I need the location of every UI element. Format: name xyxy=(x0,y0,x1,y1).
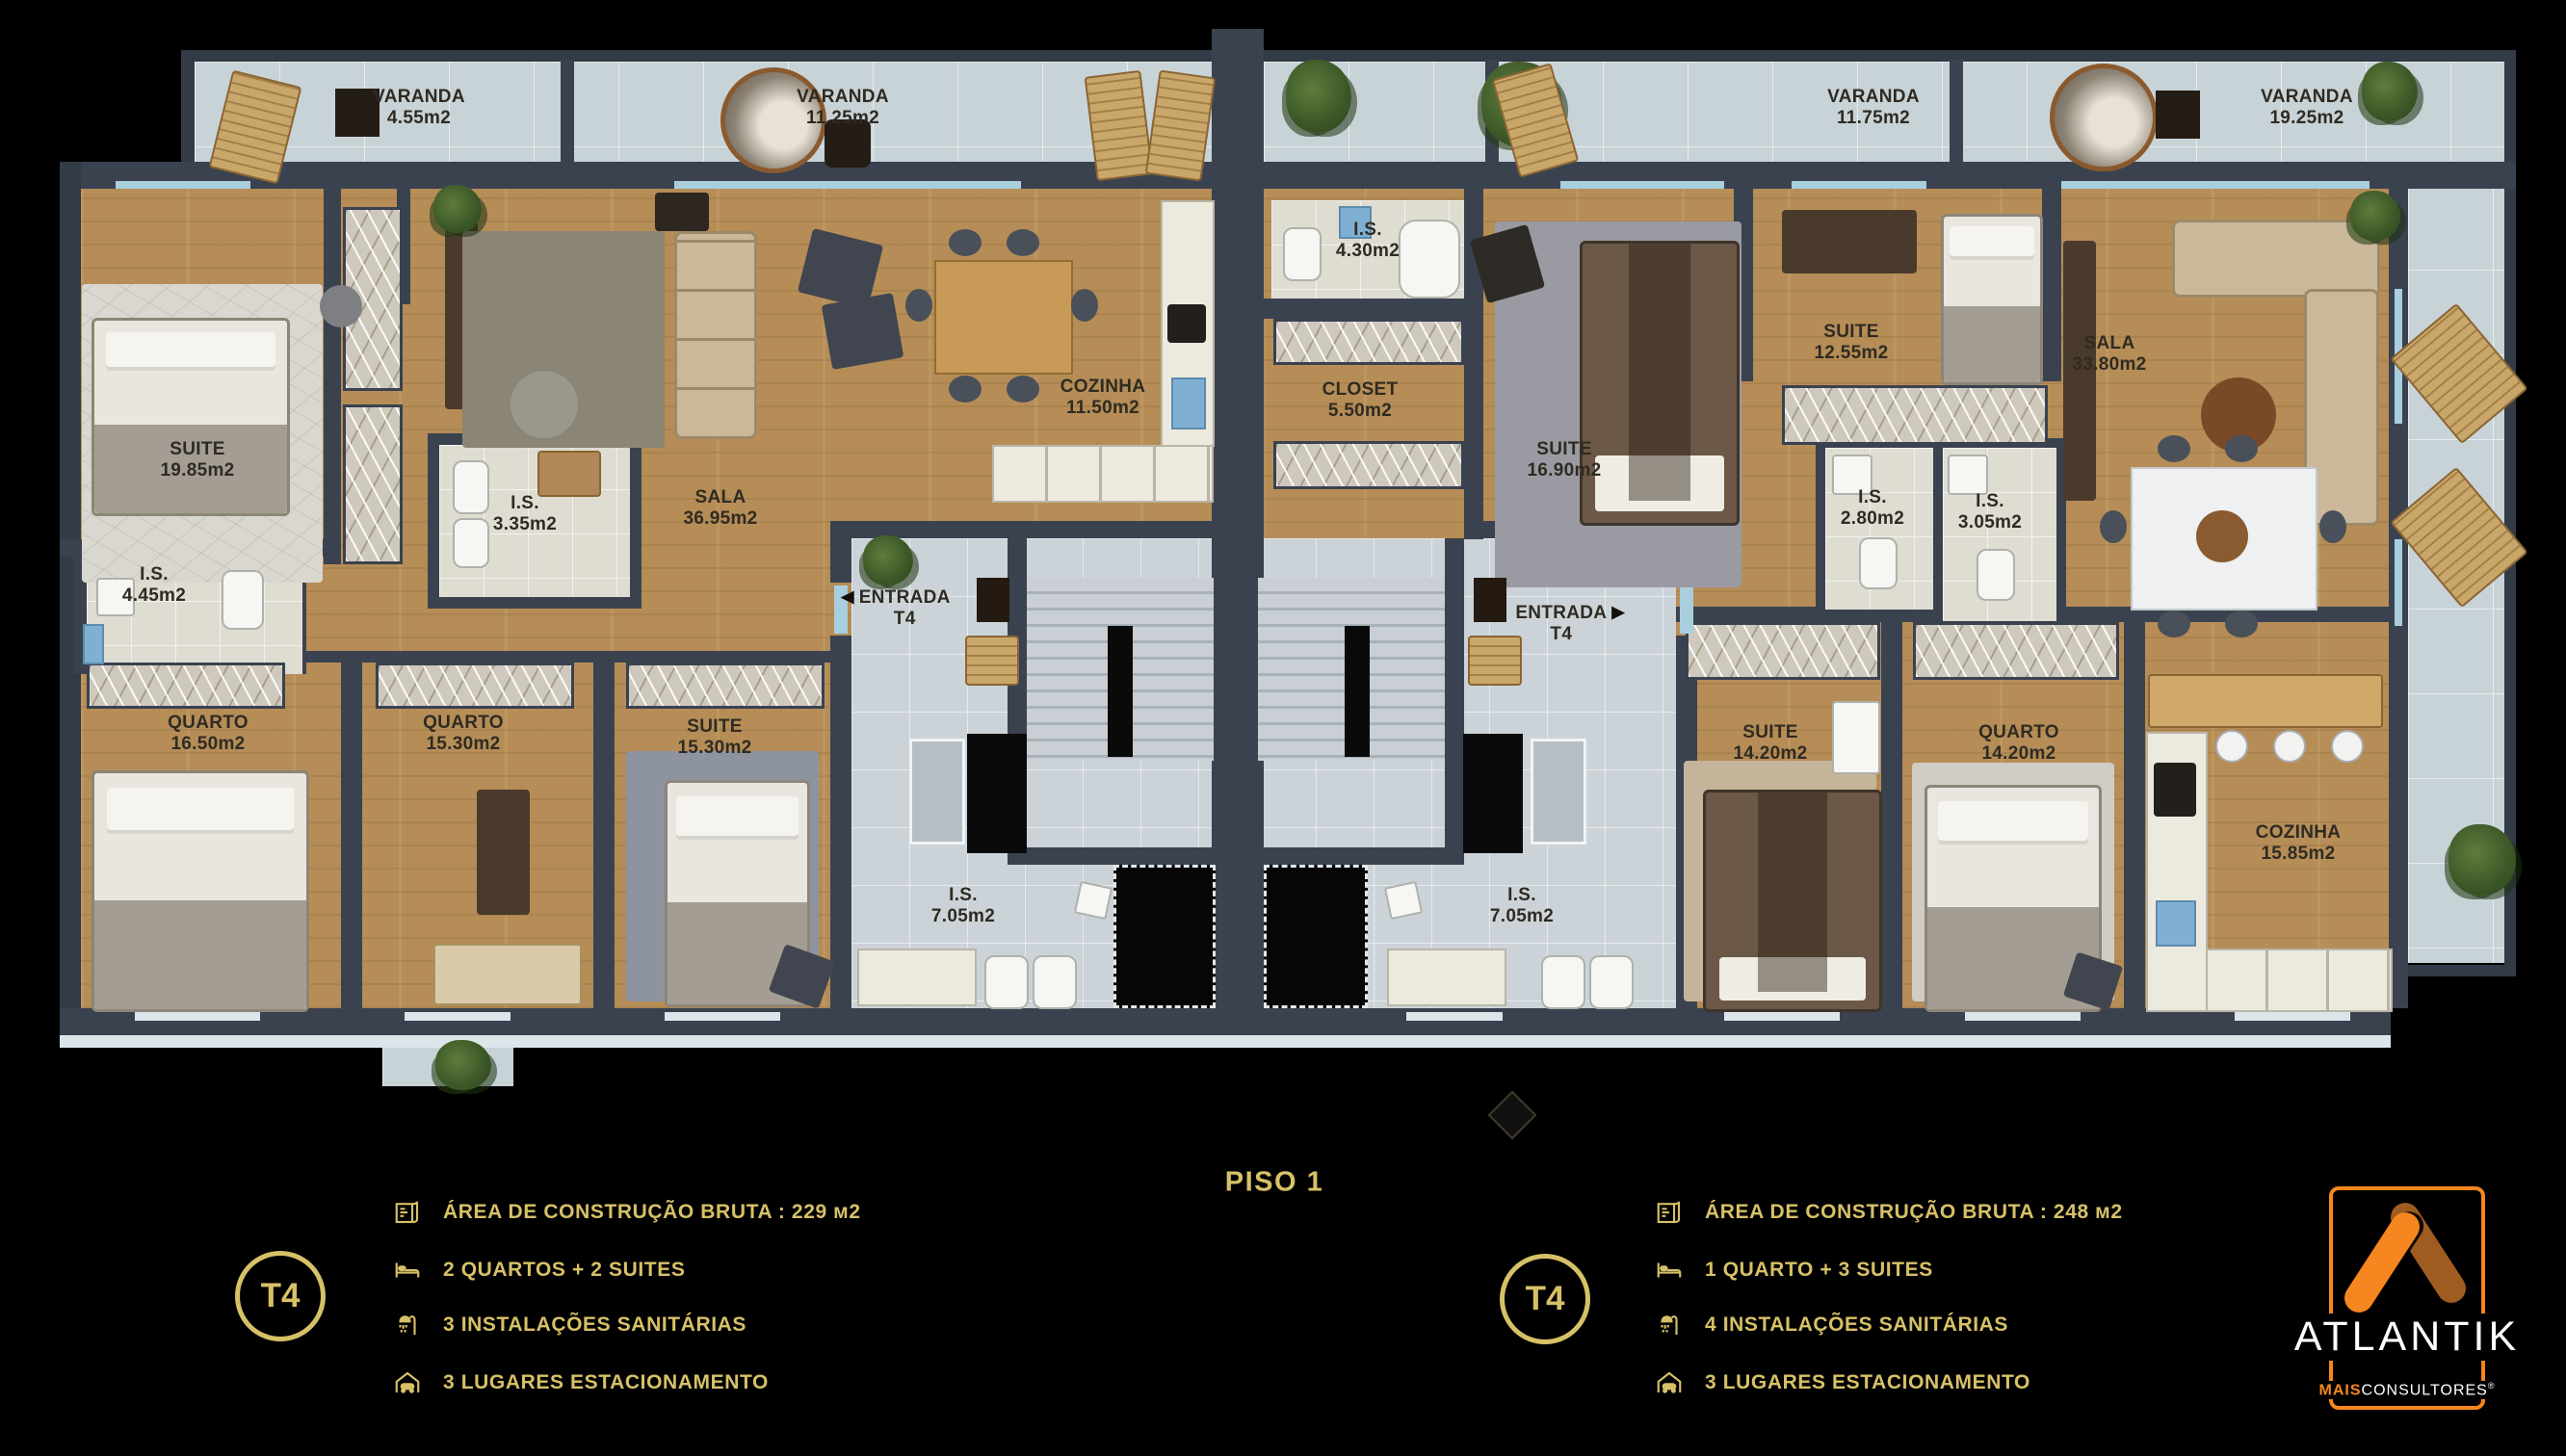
dining-chair-r5 xyxy=(2100,510,2127,543)
dining-chair-l3 xyxy=(949,376,982,403)
diamond-marker xyxy=(1488,1091,1537,1140)
wardrobe-q1650 xyxy=(87,663,285,709)
sofa-right-horizontal xyxy=(2172,220,2380,298)
plant-varanda-center-1 xyxy=(1286,60,1351,133)
plant-sala-right xyxy=(2350,191,2400,241)
closet-hatch-bottom xyxy=(1273,441,1464,489)
wall-suite1255-right xyxy=(2042,189,2061,381)
plant-entrada-left xyxy=(863,535,913,585)
stool-coz-3 xyxy=(2331,730,2364,763)
garage-icon xyxy=(391,1366,424,1399)
bench-entrada-right xyxy=(1468,636,1522,686)
toilet-is280 xyxy=(1859,537,1898,589)
label-suite-1420: SUITE14.20m2 xyxy=(1733,722,1807,765)
bed-suite19 xyxy=(92,318,290,516)
label-quarto-1650: QUARTO16.50m2 xyxy=(168,713,249,755)
sink-kitchen-left xyxy=(1171,377,1206,429)
blueprint-icon xyxy=(391,1196,424,1229)
brand-name: ATLANTIK xyxy=(2287,1313,2527,1361)
bidet-is705-left xyxy=(1033,955,1077,1009)
tub-is430 xyxy=(1399,220,1460,299)
wall-varanda-divider-1 xyxy=(561,60,574,164)
slider-sala-left xyxy=(674,181,1021,189)
dresser-suite1420 xyxy=(1832,701,1880,774)
label-sala-3380: SALA33.80m2 xyxy=(2072,333,2146,376)
dining-chair-l2 xyxy=(1007,229,1039,256)
wall-is430-bottom xyxy=(1264,299,1464,319)
dining-chair-l4 xyxy=(1007,376,1039,403)
wall-stair-bottom-left xyxy=(1027,847,1214,865)
bench-entrada-left xyxy=(965,636,1019,686)
unit-badge-left: T4 xyxy=(235,1251,326,1341)
island-bench-coz xyxy=(2148,674,2383,728)
bed-suite1255 xyxy=(1941,214,2043,385)
label-closet-550: CLOSET5.50m2 xyxy=(1322,379,1399,422)
sill-7 xyxy=(2235,1012,2350,1021)
label-is-705-right: I.S.7.05m2 xyxy=(1490,885,1554,927)
dining-chair-r3 xyxy=(2158,611,2190,637)
appliance-row-right xyxy=(2206,949,2393,1012)
stool-coz-2 xyxy=(2273,730,2306,763)
label-quarto-1530: QUARTO15.30m2 xyxy=(423,713,504,755)
stair-stringer-right xyxy=(1345,626,1370,757)
toilet-is705-right xyxy=(1541,955,1585,1009)
wall-suite19-right xyxy=(324,189,341,564)
sill-4 xyxy=(1406,1012,1503,1021)
doormat-entrada-left xyxy=(977,578,1009,622)
label-is-445: I.S.4.45m2 xyxy=(122,564,186,607)
floor-plan: VARANDA4.55m2 VARANDA11.25m2 VARANDA11.7… xyxy=(0,0,2566,1156)
cube-varanda-3 xyxy=(2156,91,2200,139)
toilet-is305 xyxy=(1977,549,2015,601)
label-suite-1985: SUITE19.85m2 xyxy=(160,439,234,481)
elevator-car-right xyxy=(1531,739,1586,845)
wall-stair-bottom-right xyxy=(1258,847,1445,865)
label-is-305: I.S.3.05m2 xyxy=(1958,491,2022,533)
legend-left-row-baths: 3 INSTALAÇÕES SANITÁRIAS xyxy=(391,1307,746,1343)
toilet-is430 xyxy=(1283,227,1322,281)
entry-arrow-left-icon: ◀ xyxy=(841,587,853,607)
settee-quarto1530 xyxy=(433,944,582,1005)
bidet-is705-right xyxy=(1589,955,1634,1009)
dining-chair-r1 xyxy=(2158,435,2190,462)
closet-hatch-top xyxy=(1273,319,1464,365)
shaft-void-left xyxy=(1113,865,1216,1008)
sill-6 xyxy=(1965,1012,2081,1021)
shaft-void-right xyxy=(1264,865,1368,1008)
blueprint-icon xyxy=(1653,1196,1686,1229)
brand-sub-rest: CONSULTORES xyxy=(2362,1382,2488,1398)
bed-quarto1650 xyxy=(92,770,309,1012)
toilet-is445 xyxy=(222,570,264,630)
appliance-row-left xyxy=(992,445,1214,503)
label-entrada-left: ◀ ENTRADAT4 xyxy=(841,587,950,630)
wall-stair-right xyxy=(1445,538,1464,865)
entry-arrow-right-icon: ▶ xyxy=(1611,603,1624,622)
legend-left-row-area: ÁREA DE CONSTRUÇÃO BRUTA : 229 м2 xyxy=(391,1194,861,1231)
wall-varanda-outer-top xyxy=(181,50,2516,62)
legend-right-row-area: ÁREA DE CONSTRUÇÃO BRUTA : 248 м2 xyxy=(1653,1194,2123,1231)
legend-right-row-baths: 4 INSTALAÇÕES SANITÁRIAS xyxy=(1653,1307,2008,1343)
cooktop-coz-right xyxy=(2154,763,2196,817)
label-suite-1530: SUITE15.30m2 xyxy=(677,716,751,759)
sill-5 xyxy=(1724,1012,1840,1021)
label-is-280: I.S.2.80m2 xyxy=(1841,487,1904,530)
sofa-sala-left xyxy=(674,231,757,439)
speaker-cabinet-left xyxy=(655,193,709,231)
slider-suite1690 xyxy=(1560,181,1724,189)
legend-right-row-parking: 3 LUGARES ESTACIONAMENTO xyxy=(1653,1365,2030,1401)
stair-stringer-left xyxy=(1108,626,1133,757)
bidet-is335 xyxy=(453,518,489,568)
label-quarto-1420: QUARTO14.20m2 xyxy=(1978,722,2059,765)
label-entrada-right: ENTRADAT4 ▶ xyxy=(1515,603,1624,645)
logo-chevron-left-bar xyxy=(2339,1207,2424,1317)
elevator-shaft-left xyxy=(967,734,1027,853)
cabinet-quarto1530 xyxy=(477,790,530,915)
floor-title: PISO 1 xyxy=(1225,1167,1324,1199)
wardrobe-s1420 xyxy=(1686,622,1880,680)
label-cozinha-1585: COZINHA15.85m2 xyxy=(2256,822,2342,865)
egg-chair-right xyxy=(2050,64,2158,171)
wall-q14-coz xyxy=(2124,622,2145,1008)
wall-q1-q2 xyxy=(341,663,362,1008)
atlantik-logo: ATLANTIK MAISCONSULTORES® xyxy=(2329,1186,2485,1410)
plant-balcony-right xyxy=(2448,824,2516,896)
wardrobe-s1530 xyxy=(626,663,825,709)
wall-q2-s3 xyxy=(593,663,615,1008)
bed-suite1420 xyxy=(1703,790,1882,1012)
dining-table-left xyxy=(934,260,1073,375)
garage-icon xyxy=(1653,1366,1686,1399)
brand-sub-bold: MAIS xyxy=(2319,1382,2362,1398)
bed-suite1690 xyxy=(1580,241,1740,526)
sill-1 xyxy=(135,1012,260,1021)
label-is-705-left: I.S.7.05m2 xyxy=(931,885,995,927)
dining-chair-r2 xyxy=(2225,435,2258,462)
elevator-shaft-right xyxy=(1463,734,1523,853)
elevator-car-left xyxy=(909,739,965,845)
legend-left-row-beds: 2 QUARTOS + 2 SUITES xyxy=(391,1252,685,1288)
sink-coz-right xyxy=(2156,900,2196,947)
armchair-left-2 xyxy=(822,293,904,370)
unit-badge-right: T4 xyxy=(1500,1254,1590,1344)
dining-chair-l6 xyxy=(1071,289,1098,322)
slider-sala-right xyxy=(2061,181,2370,189)
label-varanda-1925: VARANDA19.25m2 xyxy=(2261,87,2353,129)
mat-is705-right xyxy=(1384,881,1423,920)
wall-varanda-divider-3 xyxy=(1950,60,1963,164)
desk-suite1255 xyxy=(1782,210,1917,273)
plant-sala-left xyxy=(433,185,482,233)
round-rug-sala-left xyxy=(511,371,578,438)
label-varanda-1125: VARANDA11.25m2 xyxy=(797,87,889,129)
label-is-335: I.S.3.35m2 xyxy=(493,493,557,535)
toilet-is335 xyxy=(453,460,489,514)
vanity-is705-right xyxy=(1387,949,1506,1006)
wall-entry-left-b xyxy=(830,636,851,1008)
vanity-is335 xyxy=(537,451,601,497)
wall-s14-q14 xyxy=(1881,622,1902,1008)
dining-chair-r6 xyxy=(2319,510,2346,543)
window-suite19 xyxy=(116,181,250,189)
shower-icon xyxy=(1653,1309,1686,1341)
wall-central-party xyxy=(1212,29,1264,1035)
dining-chair-r4 xyxy=(2225,611,2258,637)
plant-stub xyxy=(435,1040,491,1090)
stool-coz-1 xyxy=(2215,730,2248,763)
label-suite-1690: SUITE16.90m2 xyxy=(1527,439,1601,481)
towel-is445 xyxy=(83,624,104,664)
toilet-is705-left xyxy=(984,955,1029,1009)
label-is-430: I.S.4.30m2 xyxy=(1336,220,1400,262)
label-cozinha-1150: COZINHA11.50m2 xyxy=(1060,377,1146,419)
centerpiece-right xyxy=(2196,510,2248,562)
label-sala-3695: SALA36.95m2 xyxy=(683,487,757,530)
vanity-is705-left xyxy=(857,949,977,1006)
shower-icon xyxy=(391,1309,424,1341)
pouf-suite19 xyxy=(320,285,362,327)
dining-chair-l1 xyxy=(949,229,982,256)
bed-icon xyxy=(1653,1254,1686,1287)
cooktop-left xyxy=(1167,304,1206,343)
dining-chair-l5 xyxy=(905,289,932,322)
wardrobe-q1420 xyxy=(1913,622,2119,680)
wall-entry-left-a xyxy=(830,521,851,583)
doormat-entrada-right xyxy=(1474,578,1506,622)
legend-right-row-beds: 1 QUARTO + 3 SUITES xyxy=(1653,1252,1933,1288)
sink-is305 xyxy=(1948,455,1988,495)
sill-bottom-band xyxy=(60,1035,2391,1048)
door-entrada-right xyxy=(1680,585,1693,634)
sill-2 xyxy=(405,1012,511,1021)
wardrobe-corridor-b xyxy=(343,404,403,564)
floorplan-poster: VARANDA4.55m2 VARANDA11.25m2 VARANDA11.7… xyxy=(0,0,2566,1456)
bed-icon xyxy=(391,1254,424,1287)
wardrobe-s1255 xyxy=(1782,385,2048,445)
brand-subtitle: MAISCONSULTORES® xyxy=(2314,1381,2501,1399)
sill-3 xyxy=(665,1012,780,1021)
slider-balcony-b xyxy=(2395,539,2402,626)
plant-varanda-right xyxy=(2362,62,2418,121)
legend-left-row-parking: 3 LUGARES ESTACIONAMENTO xyxy=(391,1365,769,1401)
registered-mark: ® xyxy=(2488,1381,2496,1391)
label-suite-1255: SUITE12.55m2 xyxy=(1814,322,1888,364)
wardrobe-q1530 xyxy=(376,663,574,709)
mat-is705-left xyxy=(1074,881,1113,920)
window-suite1255 xyxy=(1792,181,1926,189)
label-varanda-455: VARANDA4.55m2 xyxy=(373,87,465,129)
label-varanda-1175: VARANDA11.75m2 xyxy=(1827,87,1920,129)
wall-entry-top-left xyxy=(851,521,1214,538)
